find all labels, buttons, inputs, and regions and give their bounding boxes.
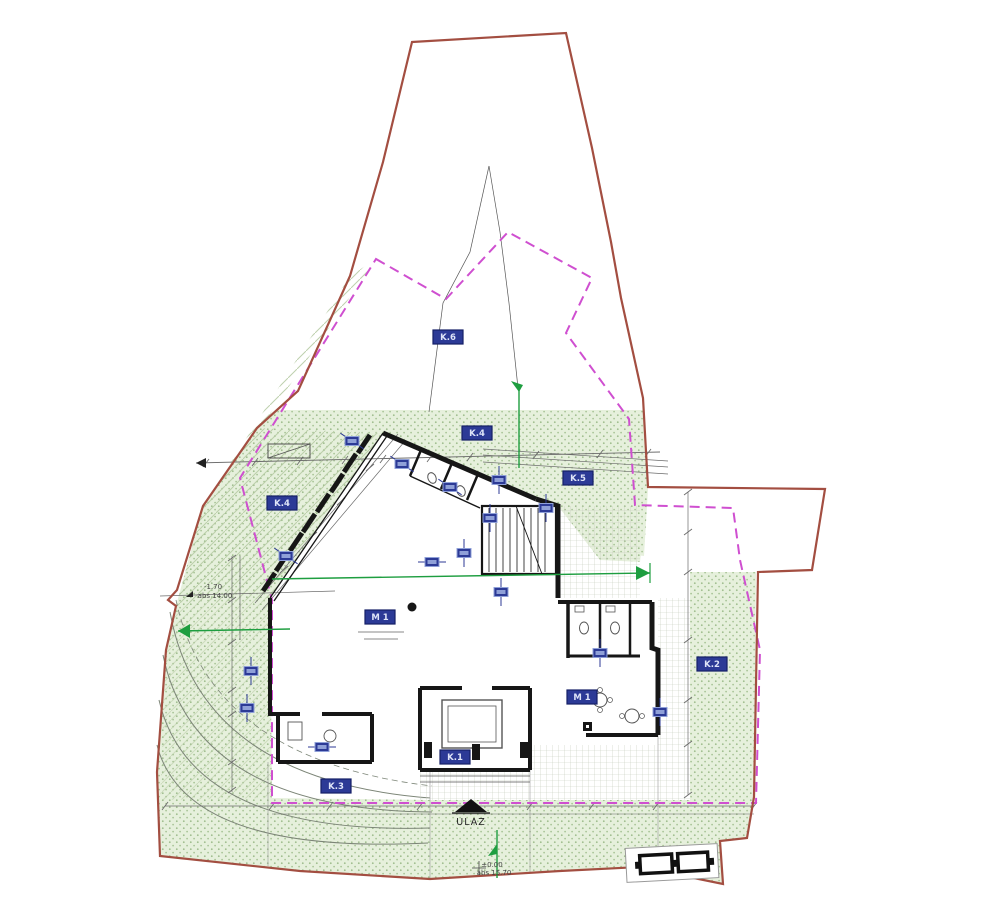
svg-text:K.6: K.6 — [440, 333, 456, 343]
svg-text:M 1: M 1 — [573, 693, 590, 703]
position-tag — [308, 743, 336, 752]
entrance-abs-level: abs 15.70 — [477, 869, 512, 877]
svg-text:K.4: K.4 — [469, 429, 485, 439]
svg-text:K.1: K.1 — [447, 753, 463, 763]
svg-text:K.2: K.2 — [704, 660, 720, 670]
room-label: K.4 — [267, 496, 297, 510]
room-label: K.1 — [440, 750, 470, 764]
position-tag — [494, 578, 508, 606]
entrance-label: ULAZ — [456, 817, 485, 828]
room-label: K.6 — [433, 330, 463, 344]
position-tag — [593, 639, 607, 667]
room-label: K.2 — [697, 657, 727, 671]
room-label: M 1 — [567, 690, 597, 704]
svg-text:K.4: K.4 — [274, 499, 290, 509]
room-label: K.5 — [563, 471, 593, 485]
entrance-level: ±0.00 — [481, 861, 502, 869]
west-abs-level: abs 14.00 — [198, 592, 233, 600]
room-label: K.4 — [462, 426, 492, 440]
slope-hatch-areas — [160, 259, 383, 800]
legend-symbol — [625, 844, 719, 883]
svg-text:K.3: K.3 — [328, 782, 344, 792]
position-tag — [457, 539, 471, 567]
site-plan-page: K.6K.4K.4K.5K.2K.3K.1M 1M 1 ULAZ ±0.00 a… — [0, 0, 1000, 916]
svg-text:M 1: M 1 — [371, 613, 388, 623]
position-tag — [418, 558, 446, 567]
sublabel-lines — [358, 632, 404, 639]
site-plan-drawing: K.6K.4K.4K.5K.2K.3K.1M 1M 1 ULAZ ±0.00 a… — [0, 0, 1000, 916]
room-label: K.3 — [321, 779, 351, 793]
svg-text:K.5: K.5 — [570, 474, 586, 484]
room-label: M 1 — [365, 610, 395, 624]
columns — [408, 603, 593, 761]
west-level: -1.70 — [204, 583, 222, 591]
survey-lines — [429, 166, 518, 412]
